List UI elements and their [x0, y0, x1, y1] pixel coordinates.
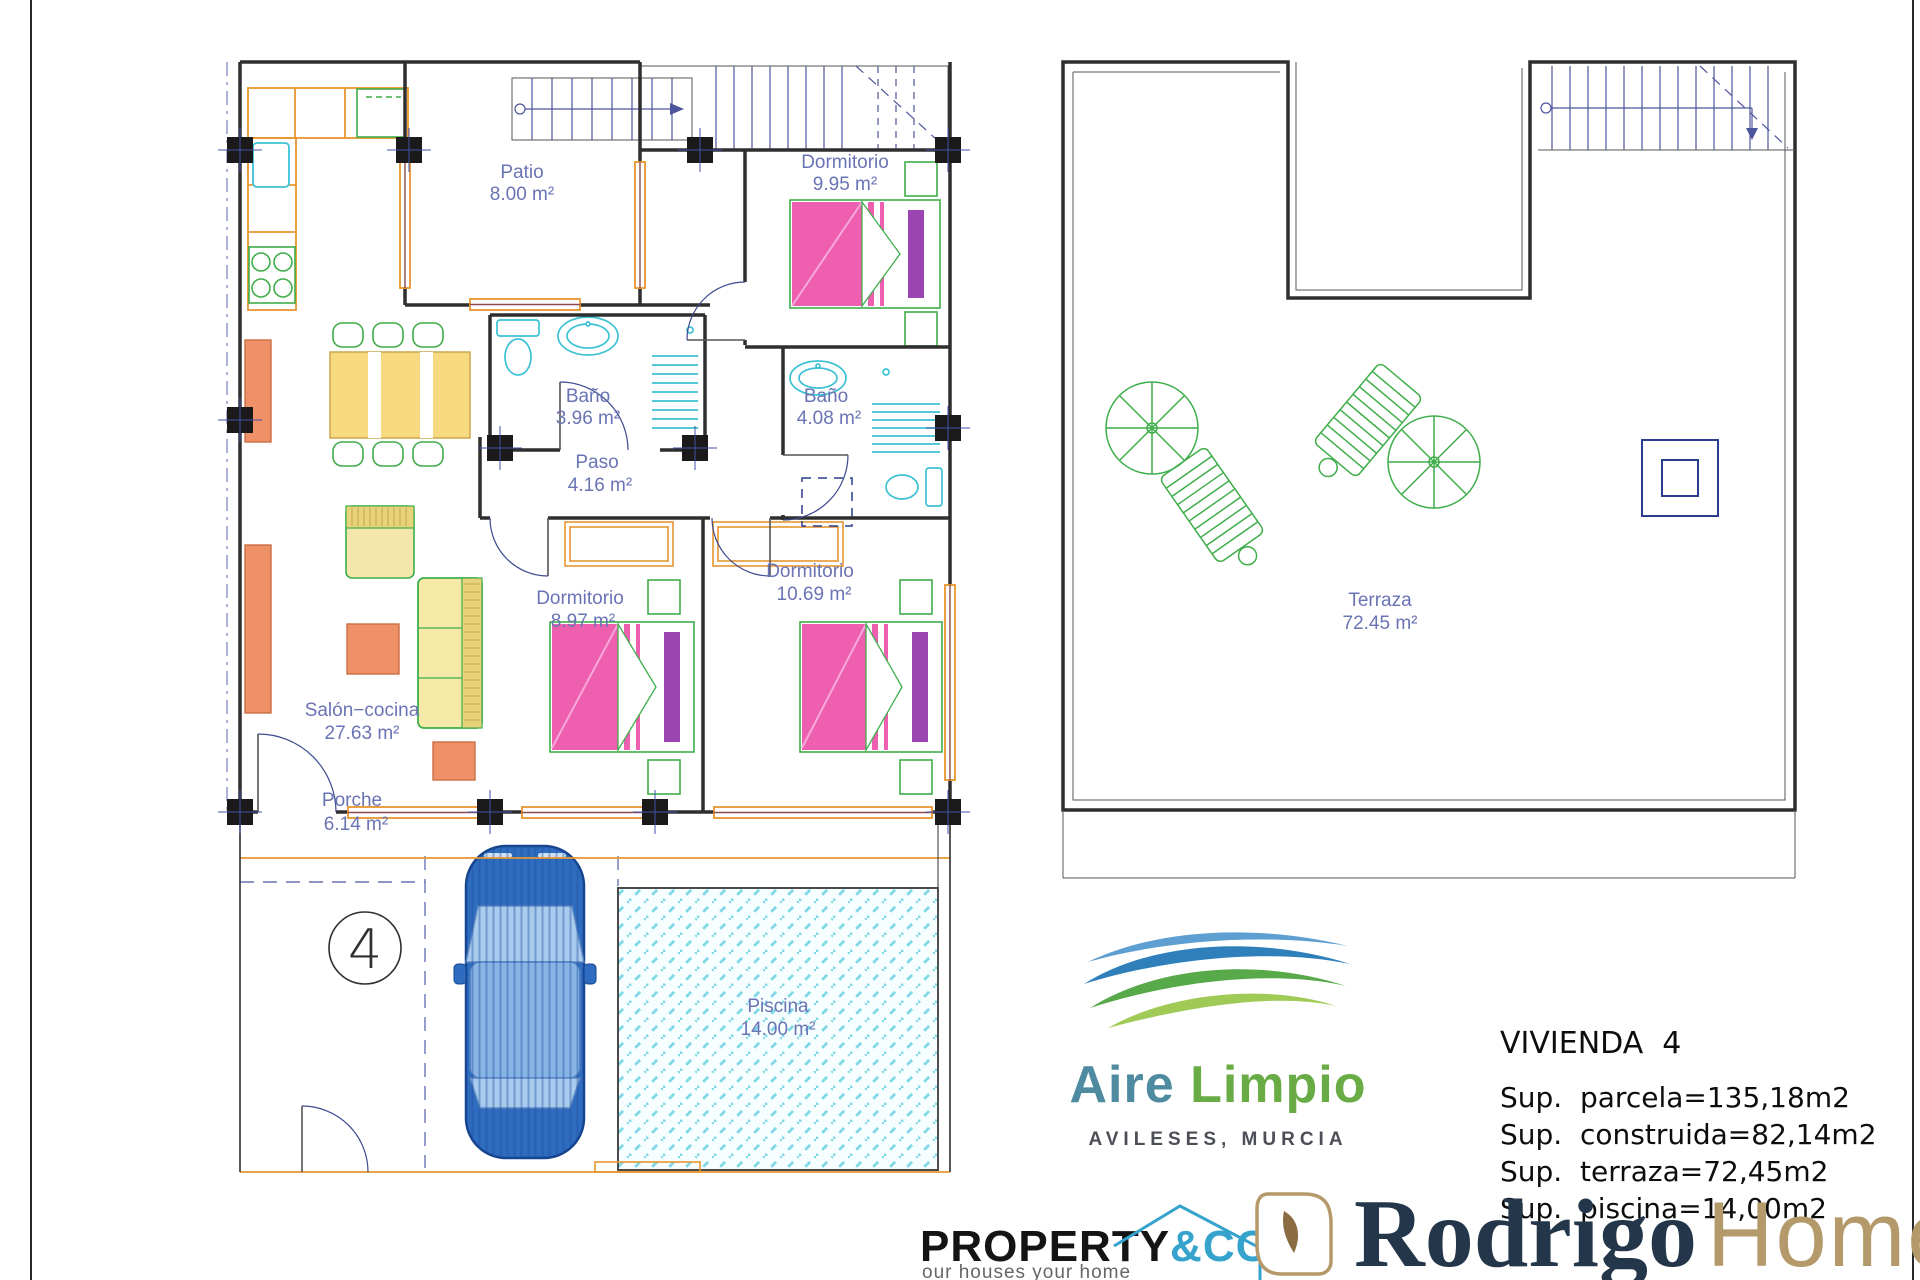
dining-table [330, 352, 470, 438]
room-area-paso: 4.16 m² [568, 475, 632, 496]
rodrigo-homes-logo: RodrigoHomes [1252, 1178, 1920, 1280]
spec-parcela: Sup. parcela=135,18m2 [1500, 1079, 1877, 1116]
toilet-icon [497, 320, 539, 336]
room-area-terraza: 72.45 m² [1343, 613, 1418, 634]
parasol-icon [1388, 416, 1480, 508]
rodrigo-word: Rodrigo [1354, 1180, 1697, 1280]
rodrigo-leaf-icon [1252, 1189, 1336, 1279]
spec-construida: Sup. construida=82,14m2 [1500, 1116, 1877, 1153]
aire-limpio-name: Aire Limpio [1062, 1055, 1374, 1115]
plan-sheet: 4 [0, 0, 1920, 1280]
aire-word-1: Aire [1069, 1056, 1174, 1114]
room-label-terraza: Terraza [1348, 590, 1412, 611]
toilet-icon [886, 475, 918, 499]
aire-limpio-waves-icon [1078, 922, 1358, 1050]
car [454, 846, 596, 1158]
terrace-plan: Terraza 72.45 m² [1063, 62, 1795, 878]
vivienda-title: VIVIENDA 4 [1500, 1026, 1877, 1061]
room-area-piscina: 14.00 m² [741, 1019, 816, 1040]
sun-lounger-icon [1159, 446, 1275, 579]
room-label-salon: Salón−cocina [305, 700, 420, 721]
property-co-tagline: our houses your home [922, 1262, 1131, 1280]
shower-icon [652, 327, 698, 428]
rodrigo-homes-name: RodrigoHomes [1354, 1178, 1920, 1280]
dining-set [330, 323, 470, 466]
bed-dormitorio-right [800, 622, 942, 752]
toilet-icon [926, 468, 942, 506]
room-label-piscina: Piscina [747, 996, 809, 1017]
stairs-terrace [1538, 66, 1795, 150]
room-label-paso: Paso [575, 452, 618, 473]
room-label-bano-2: Baño [804, 386, 848, 407]
room-area-dormitorio-right: 10.69 m² [777, 584, 852, 605]
skylight [1642, 440, 1718, 516]
room-label-dormitorio-right: Dormitorio [766, 561, 854, 582]
room-area-dormitorio-mid: 8.97 m² [551, 611, 615, 632]
aire-word-2: Limpio [1190, 1056, 1366, 1114]
room-label-bano-1: Baño [566, 386, 610, 407]
room-label-patio: Patio [500, 162, 543, 183]
toilet-icon [505, 339, 531, 375]
armchair [346, 506, 414, 578]
room-area-porche: 6.14 m² [324, 814, 388, 835]
room-label-dormitorio-mid: Dormitorio [536, 588, 624, 609]
room-area-salon: 27.63 m² [325, 723, 400, 744]
bed-dormitorio-mid [550, 622, 694, 752]
aire-limpio-location: AVILESES, MURCIA [1062, 1129, 1374, 1151]
aire-limpio-logo: Aire Limpio AVILESES, MURCIA [1062, 922, 1374, 1151]
room-area-bano-1: 3.96 m² [556, 408, 620, 429]
bed-dormitorio-top [790, 200, 940, 308]
sofa [418, 578, 482, 728]
tv-bench [245, 340, 271, 713]
stairs-ground [512, 66, 948, 150]
fridge-icon [357, 89, 405, 137]
property-co-roof-icon [1108, 1182, 1268, 1280]
kitchen [248, 88, 408, 310]
room-label-dormitorio-top: Dormitorio [801, 152, 889, 173]
room-area-bano-2: 4.08 m² [797, 408, 861, 429]
room-area-patio: 8.00 m² [490, 184, 554, 205]
room-area-dormitorio-top: 9.95 m² [813, 174, 877, 195]
ground-floor-plan: 4 [218, 62, 970, 1172]
terrace-outer-wall [1063, 62, 1795, 810]
room-label-porche: Porche [322, 790, 382, 811]
hob-icon [249, 247, 295, 303]
plot-number: 4 [348, 918, 382, 981]
bathroom-2-fixtures [790, 361, 942, 506]
homes-word: Homes [1707, 1184, 1920, 1280]
plot-number-badge: 4 [329, 912, 401, 984]
